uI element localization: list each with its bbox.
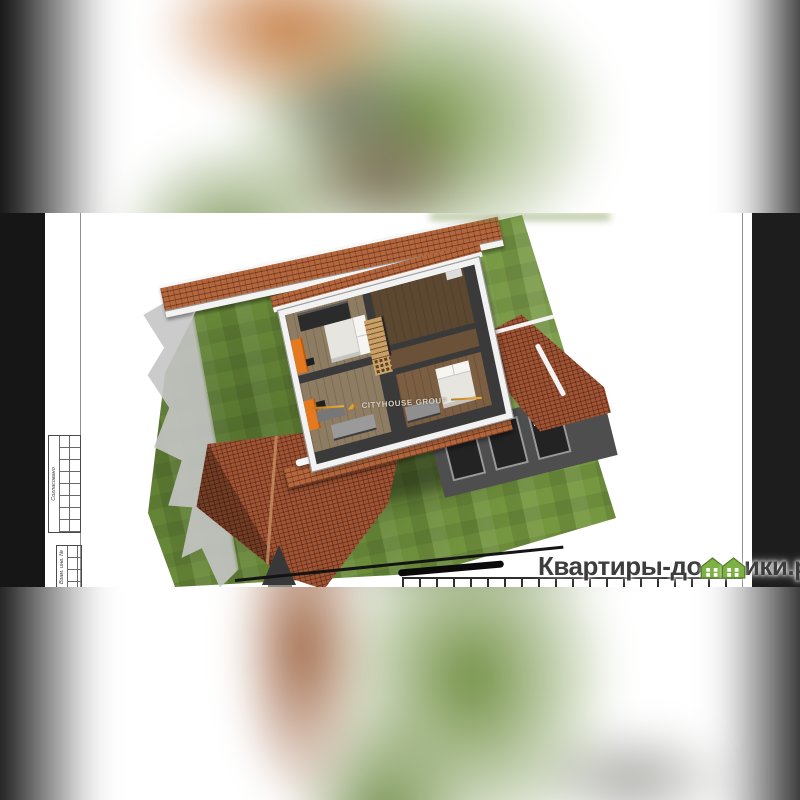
orange-wardrobe bbox=[290, 338, 309, 374]
watermark-suffix: ики.рф bbox=[744, 551, 800, 582]
furniture-white bbox=[445, 268, 462, 280]
letterbox-top-blur-layer bbox=[0, 0, 800, 213]
label-text: Взам. инв. № bbox=[59, 550, 65, 584]
bedroom-top-left bbox=[285, 295, 375, 376]
logo-word-2: GROUP bbox=[415, 395, 447, 406]
title-block-inv-label: Взам. инв. № bbox=[57, 546, 68, 587]
logo-word-1: CITYHOUSE bbox=[361, 398, 413, 410]
house-icon bbox=[721, 556, 746, 580]
drawing-sheet: CITYHOUSE GROUP Согласовано Взам. инв. №… bbox=[0, 213, 800, 587]
title-block-agreed: Согласовано bbox=[48, 435, 81, 533]
blur-smear-top-edge bbox=[430, 213, 610, 220]
dark-strip-left bbox=[0, 213, 45, 587]
logo-line-right bbox=[450, 397, 482, 401]
title-block-inv: Взам. инв. № bbox=[56, 545, 82, 587]
dark-strip-right bbox=[752, 213, 800, 587]
screenshot-frame: CITYHOUSE GROUP Согласовано Взам. инв. №… bbox=[0, 0, 800, 800]
letterbox-bottom-blur bbox=[0, 587, 800, 800]
logo-line-left bbox=[312, 405, 344, 409]
gray-sofa bbox=[331, 414, 377, 441]
watermark-prefix: Квартиры-до bbox=[538, 551, 702, 582]
title-block-agreed-label: Согласовано bbox=[49, 436, 60, 532]
label-text: Согласовано bbox=[51, 467, 57, 501]
sheet-frame-line-right bbox=[742, 213, 743, 587]
roof-glyph-icon bbox=[346, 401, 359, 411]
tv-stand bbox=[306, 357, 315, 366]
letterbox-top-blur bbox=[0, 0, 800, 213]
site-watermark: Квартиры-до ики.рф bbox=[538, 549, 800, 583]
letterbox-bottom-blur-layer bbox=[0, 587, 800, 800]
pillows bbox=[435, 360, 470, 380]
